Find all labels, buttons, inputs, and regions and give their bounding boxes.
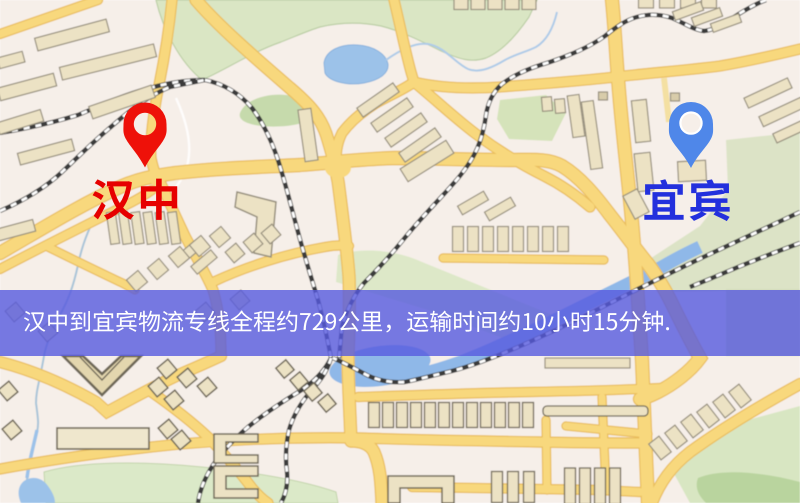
svg-text:汉中到宜宾物流专线全程约729公里，运输时间约10小时15分: 汉中到宜宾物流专线全程约729公里，运输时间约10小时15分钟.	[23, 303, 671, 337]
svg-text:宜宾: 宜宾	[642, 166, 734, 230]
svg-text:汉中: 汉中	[91, 165, 183, 229]
